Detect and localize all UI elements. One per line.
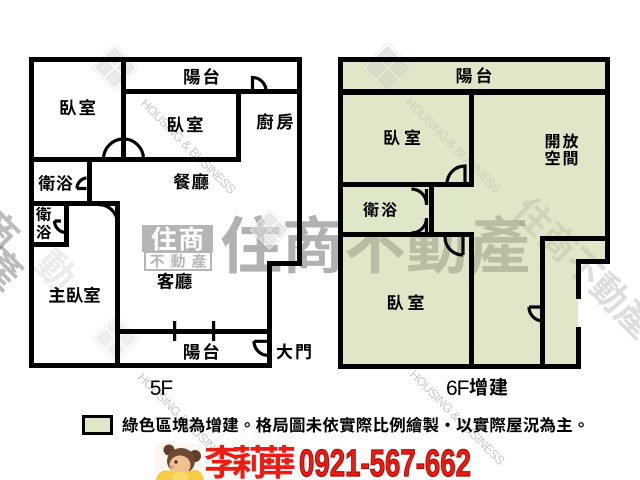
svg-text:5F: 5F [150,377,173,400]
svg-text:6F: 6F [446,377,469,400]
svg-text:0921-567-662: 0921-567-662 [299,443,471,480]
